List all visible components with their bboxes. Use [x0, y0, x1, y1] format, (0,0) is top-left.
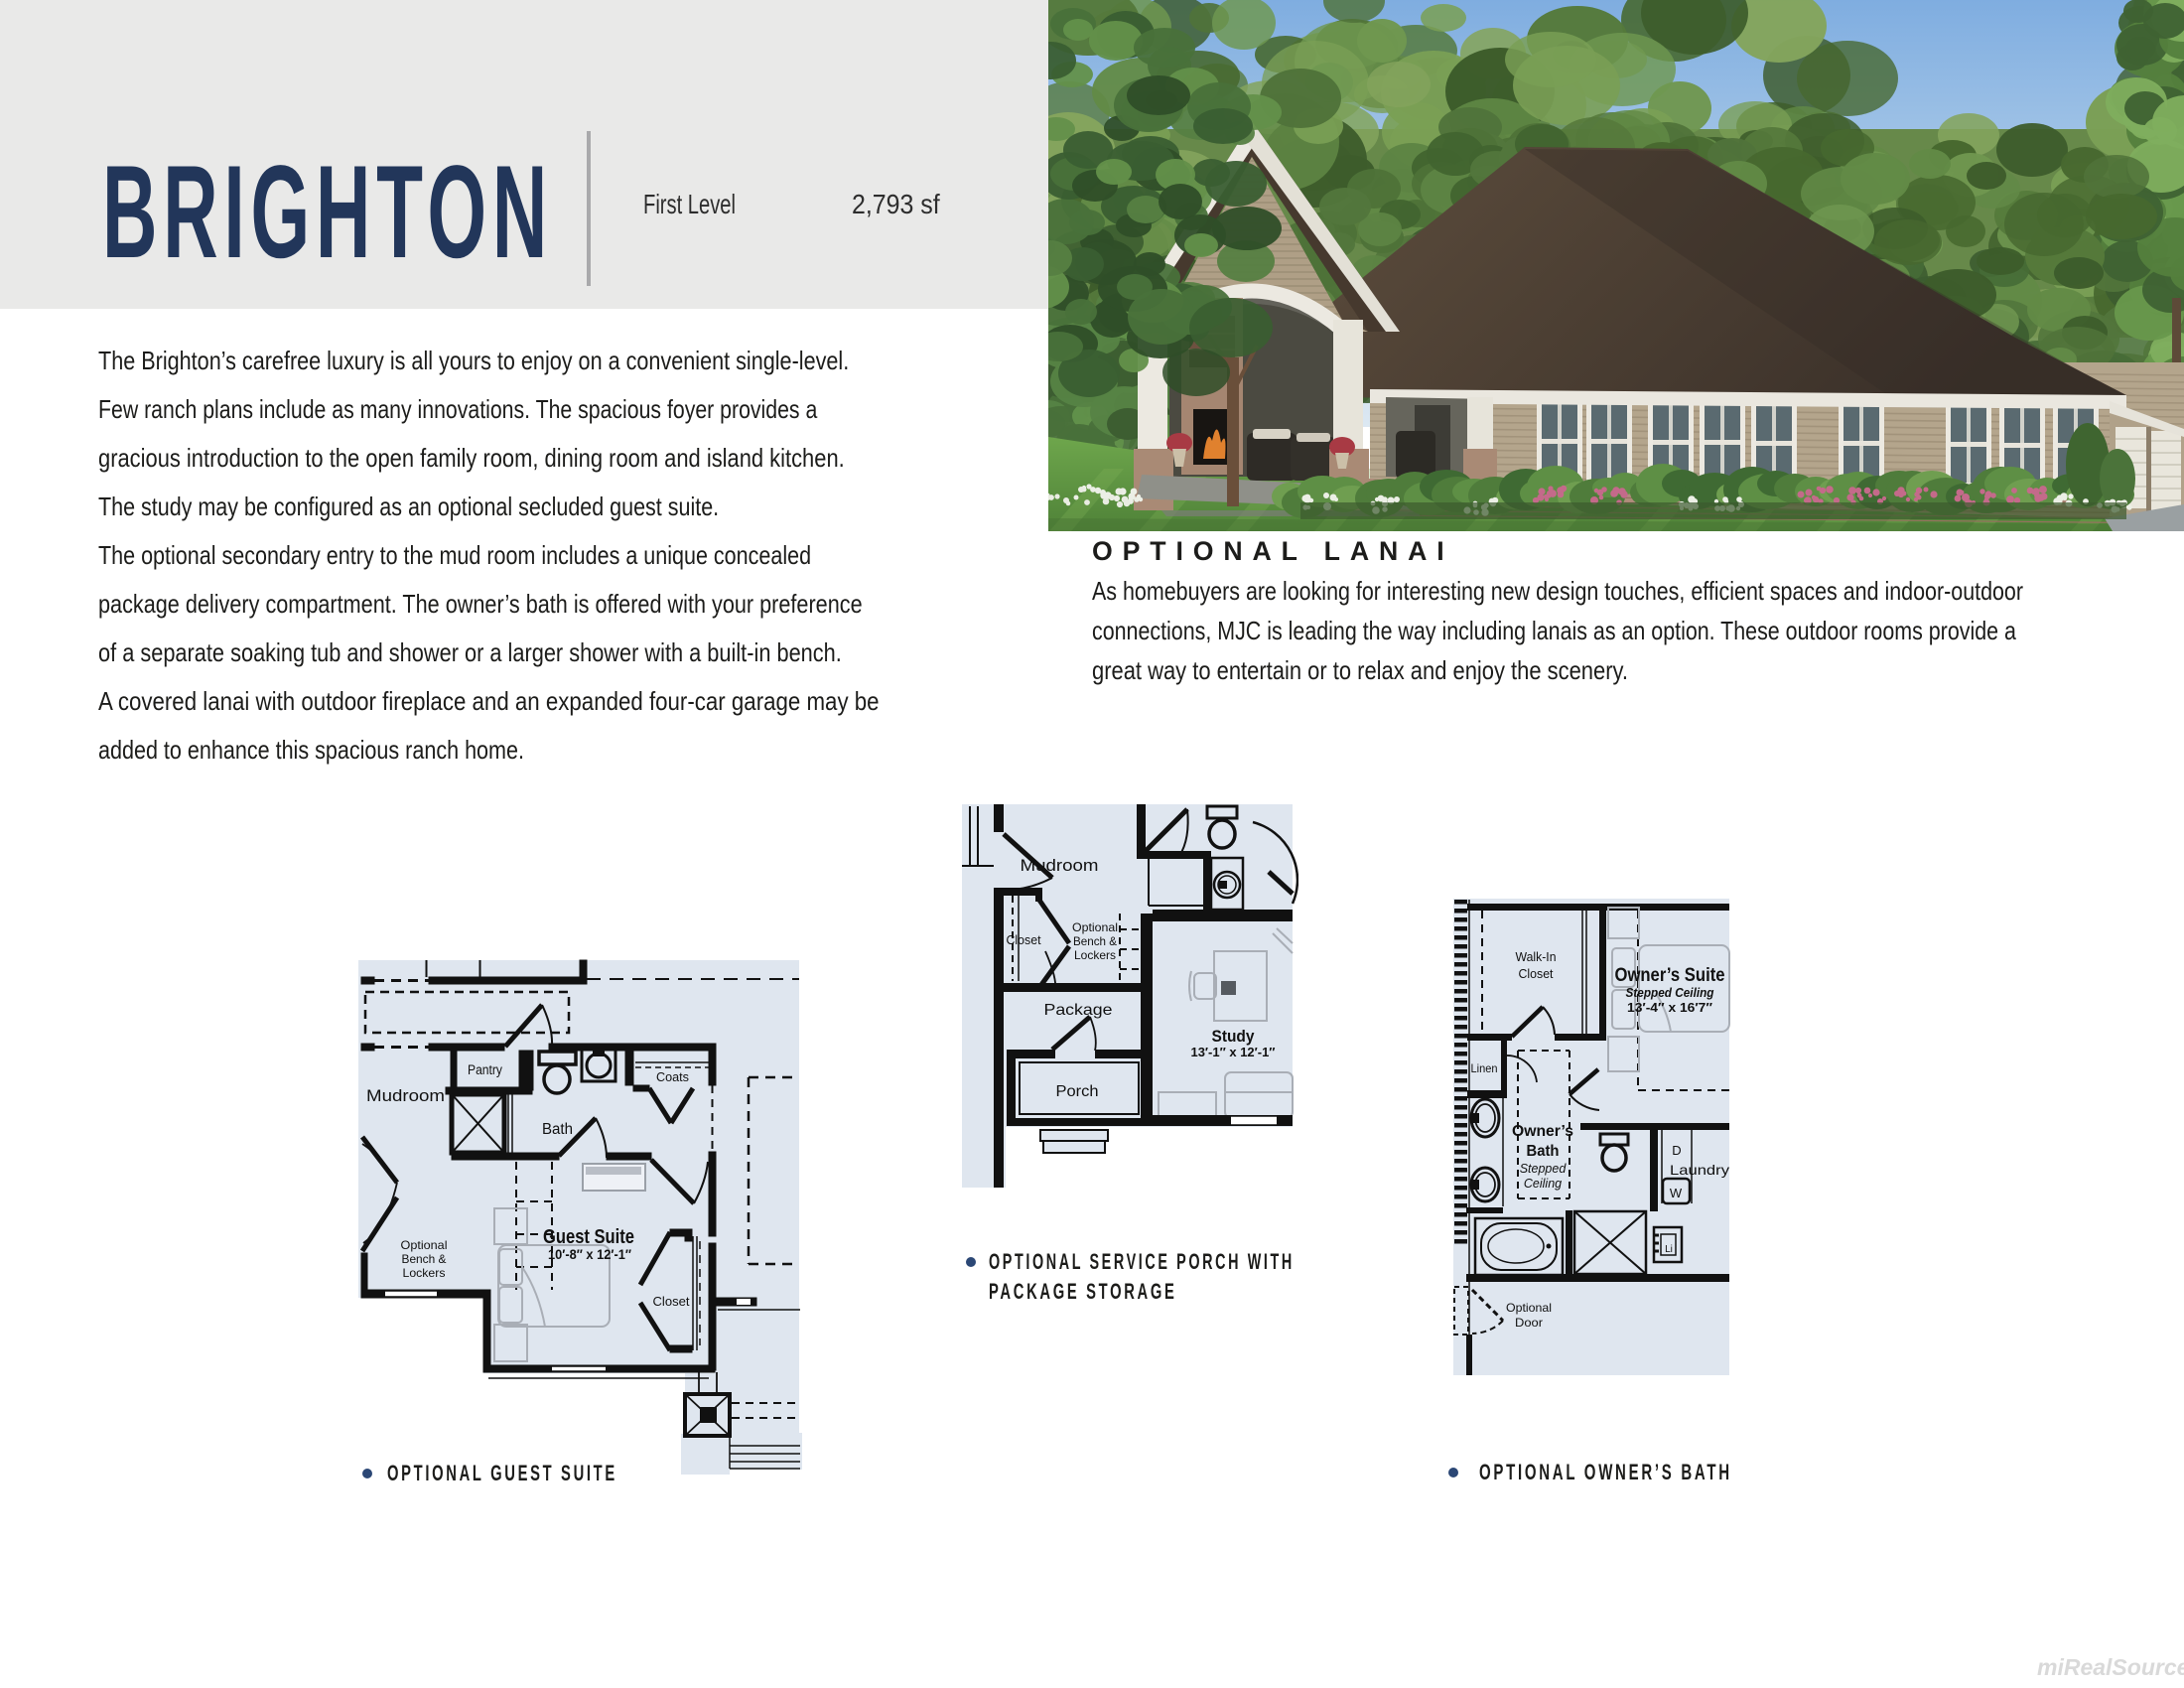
svg-text:Lockers: Lockers	[1074, 948, 1116, 962]
svg-text:13′-4″ x 16′7″: 13′-4″ x 16′7″	[1627, 1000, 1712, 1015]
svg-text:D: D	[1672, 1143, 1681, 1158]
svg-text:Closet: Closet	[653, 1294, 690, 1309]
svg-text:Mudroom: Mudroom	[366, 1086, 445, 1105]
svg-text:Stepped: Stepped	[1520, 1162, 1568, 1176]
svg-text:Study: Study	[1212, 1027, 1255, 1046]
svg-text:Package: Package	[1044, 1002, 1113, 1019]
svg-text:Li: Li	[1665, 1244, 1673, 1255]
svg-text:Owner’s: Owner’s	[1512, 1123, 1573, 1140]
svg-text:Porch: Porch	[1056, 1083, 1099, 1100]
svg-text:Stepped Ceiling: Stepped Ceiling	[1626, 985, 1714, 1000]
svg-text:Bath: Bath	[542, 1121, 573, 1138]
svg-text:Mudroom: Mudroom	[1021, 856, 1099, 875]
svg-text:Optional: Optional	[1072, 920, 1118, 934]
svg-text:10′-8″ x 12′-1″: 10′-8″ x 12′-1″	[548, 1247, 631, 1262]
svg-text:Ceiling: Ceiling	[1524, 1177, 1562, 1191]
svg-text:Door: Door	[1515, 1316, 1543, 1330]
svg-text:Bath: Bath	[1527, 1143, 1560, 1160]
svg-text:Guest Suite: Guest Suite	[543, 1226, 634, 1248]
svg-text:Closet: Closet	[1519, 966, 1554, 981]
svg-text:Lockers: Lockers	[403, 1266, 446, 1280]
svg-text:Optional: Optional	[401, 1238, 448, 1252]
svg-text:13′-1″ x 12′-1″: 13′-1″ x 12′-1″	[1191, 1045, 1276, 1059]
svg-text:Linen: Linen	[1471, 1061, 1498, 1075]
svg-text:Optional: Optional	[1506, 1301, 1552, 1315]
svg-text:W: W	[1670, 1186, 1683, 1200]
svg-text:Bench &: Bench &	[1073, 934, 1117, 948]
svg-text:Closet: Closet	[1007, 933, 1042, 947]
svg-text:Walk-In: Walk-In	[1516, 949, 1557, 964]
svg-text:Bench &: Bench &	[402, 1252, 447, 1266]
svg-text:Pantry: Pantry	[468, 1062, 502, 1077]
svg-text:Coats: Coats	[656, 1070, 689, 1084]
svg-text:Owner’s Suite: Owner’s Suite	[1615, 965, 1725, 986]
svg-text:Laundry: Laundry	[1670, 1162, 1729, 1178]
